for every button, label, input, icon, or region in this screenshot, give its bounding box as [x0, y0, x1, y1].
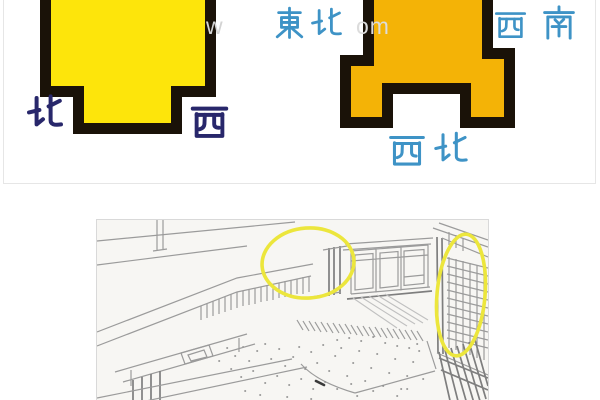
glyph-xi: [190, 101, 229, 142]
yellow-plan-shape: [46, 0, 211, 129]
glyph-bei: [25, 94, 65, 134]
label-southwest: [494, 5, 577, 41]
glyph-bei: [432, 131, 470, 169]
label-west: [190, 101, 229, 142]
highlight-ellipse-lattice: [432, 232, 488, 358]
label-north: [25, 94, 65, 134]
watermark-fragment-left: w: [206, 13, 224, 40]
label-northwest: [388, 131, 470, 169]
screenshot-root: w om: [0, 0, 600, 400]
glyph-nan: [541, 5, 577, 41]
watermark-fragment-right: om: [356, 13, 390, 40]
glyph-xi: [388, 131, 426, 169]
room-sketch-panel: [96, 219, 489, 400]
glyph-dong: [272, 6, 307, 41]
sketch-lines: [97, 220, 488, 400]
room-sketch-drawing: [97, 220, 488, 400]
glyph-xi: [494, 8, 527, 41]
glyph-bei: [309, 7, 344, 42]
highlight-circle-doorway: [260, 225, 357, 301]
label-northeast: [272, 6, 344, 42]
